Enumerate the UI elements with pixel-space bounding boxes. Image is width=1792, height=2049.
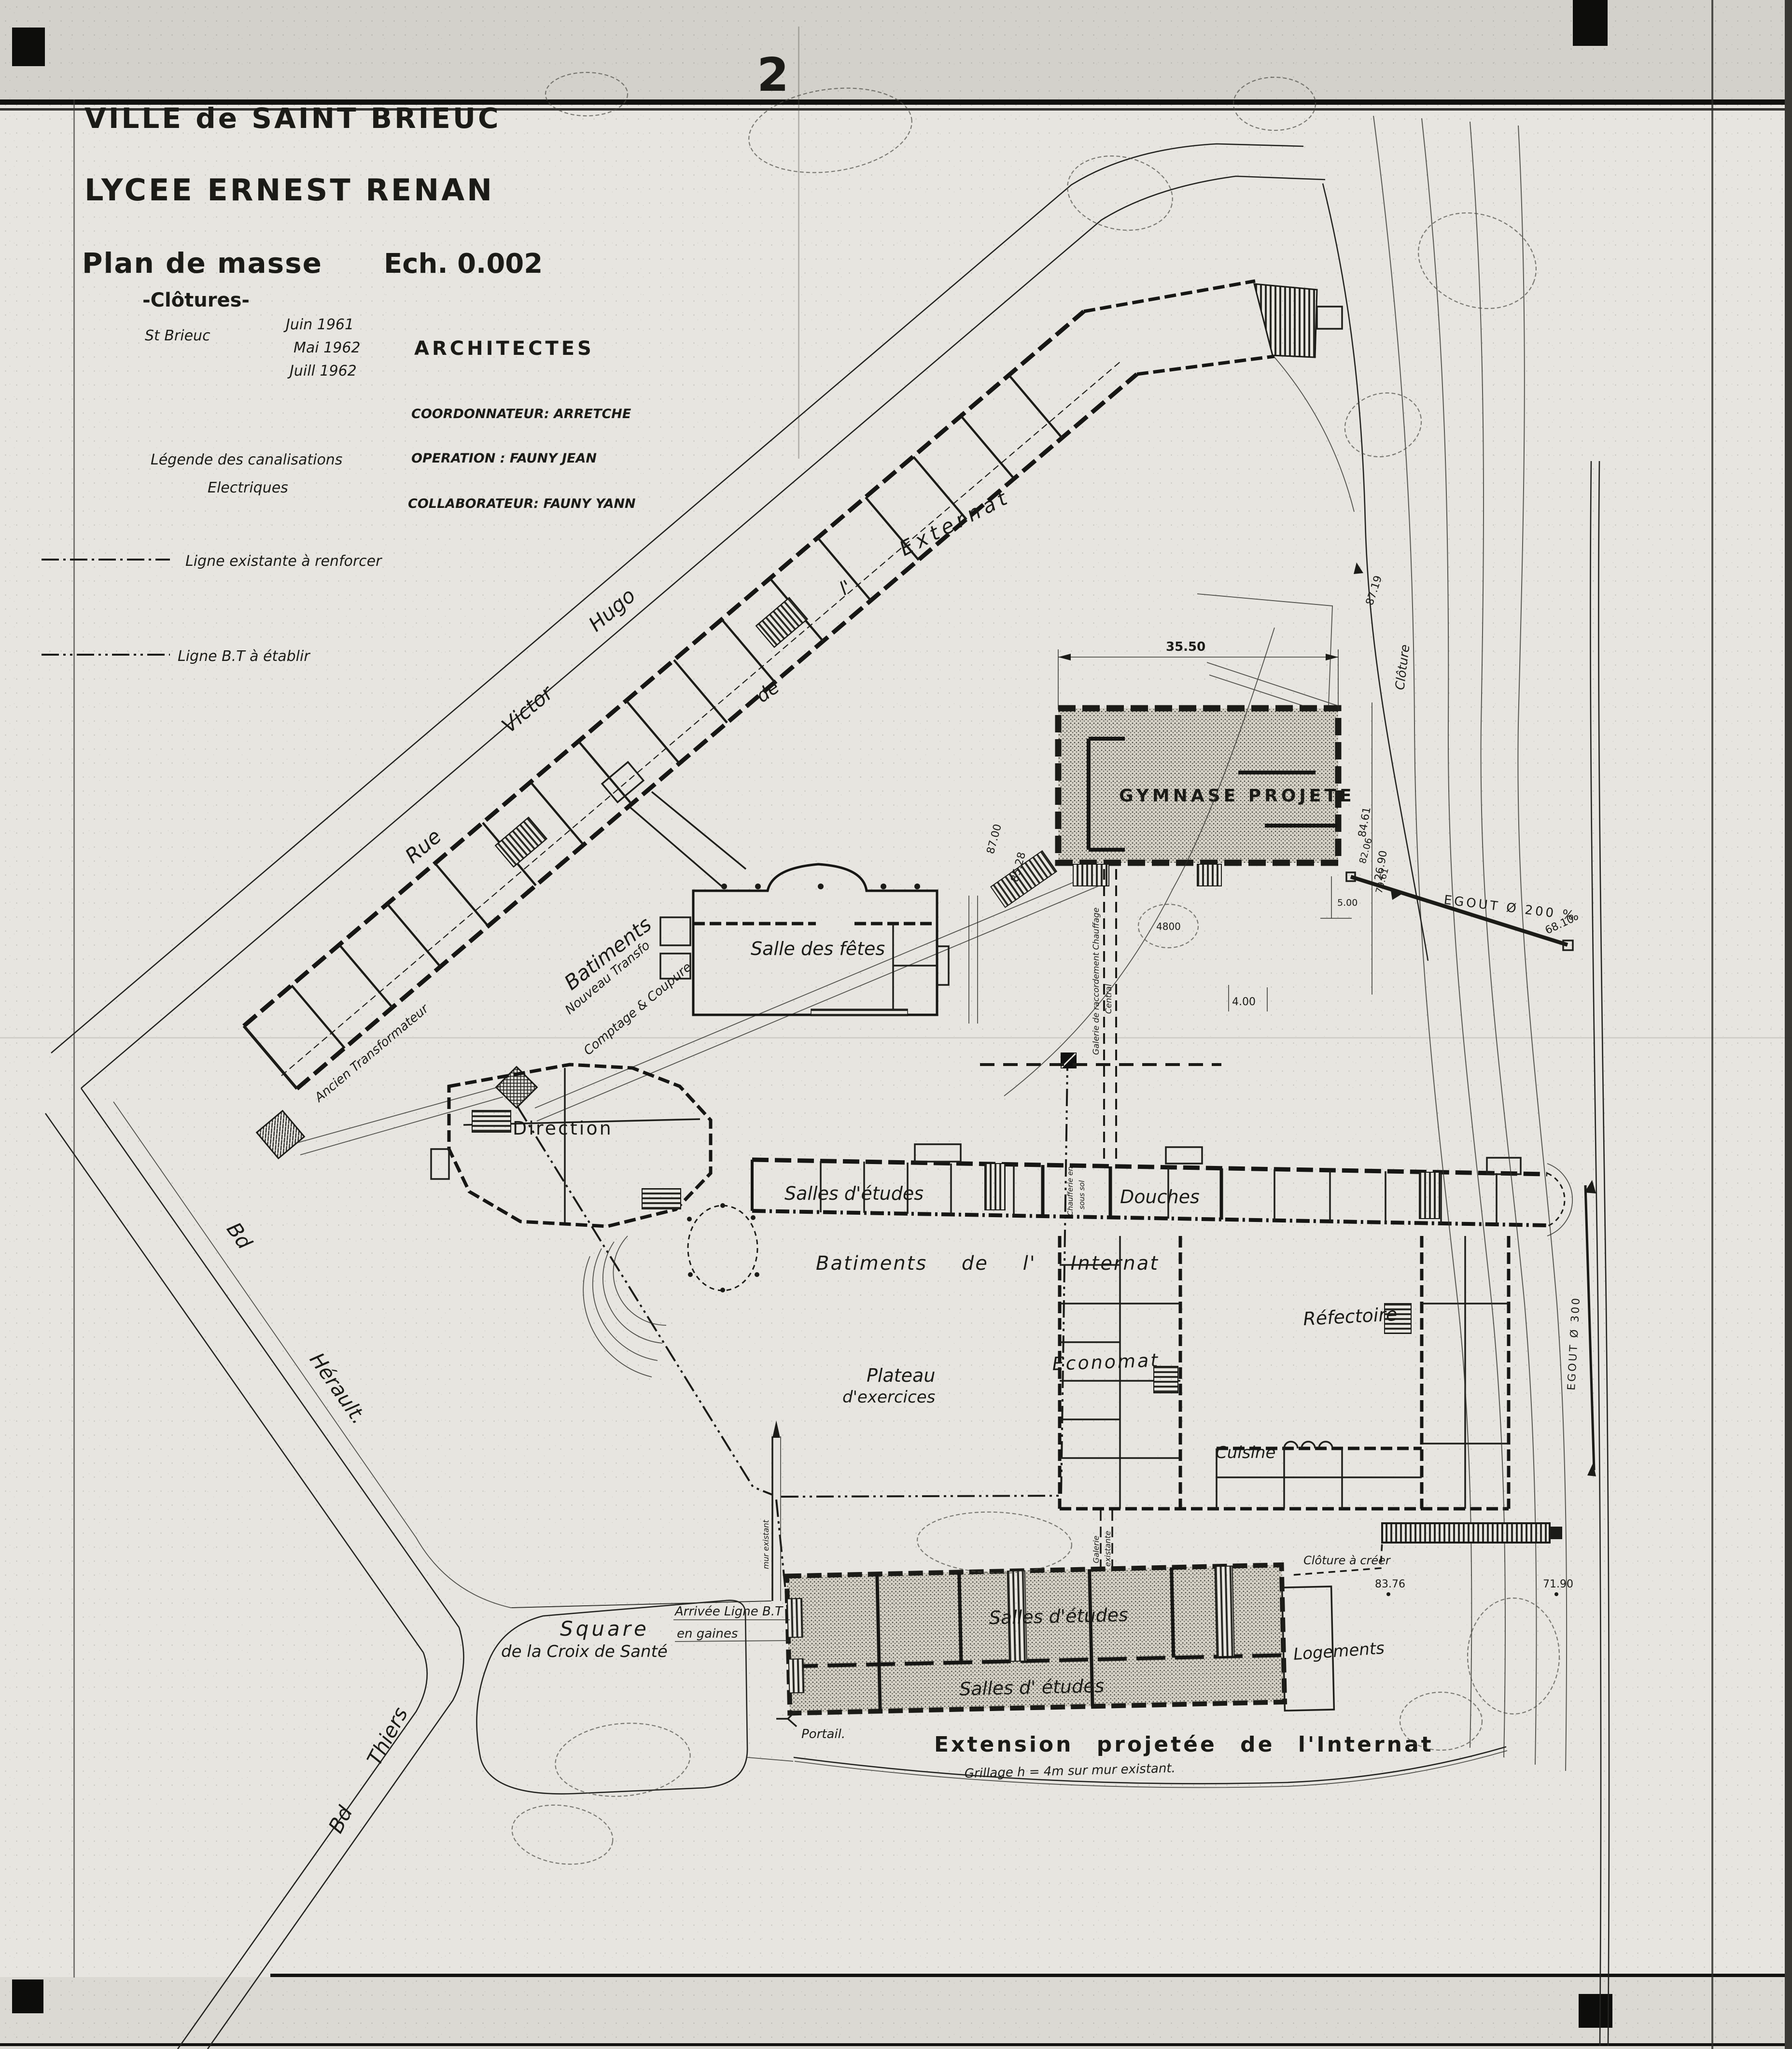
salle-fetes-columns bbox=[721, 884, 920, 889]
chaufferie-label-1: Chaufferie en bbox=[1066, 1166, 1075, 1216]
level-84-61: 84.61 bbox=[1356, 806, 1373, 838]
galerie-raccordement-lines bbox=[1104, 869, 1116, 1165]
rue-victor-hugo-label-2: Victor bbox=[497, 680, 559, 738]
title-school: LYCEE ERNEST RENAN bbox=[84, 172, 494, 208]
site-boundary-west bbox=[113, 1102, 771, 1608]
bd-herault-label-name: Hérault. bbox=[305, 1348, 371, 1429]
egout-300: EGOUT Ø 300 bbox=[1566, 1180, 1596, 1476]
building-externat: Batiments de l' Externat bbox=[244, 281, 1342, 1089]
egout-200: EGOUT Ø 200 ‰ 68.10 82.06 79.61 5.00 bbox=[1320, 837, 1582, 950]
economat-label: Economat bbox=[1052, 1349, 1160, 1375]
gym-stair-se bbox=[1197, 864, 1221, 886]
extension-salles-label-2: Salles d' études bbox=[959, 1675, 1105, 1700]
salle-fetes-link-1 bbox=[630, 807, 724, 888]
bt-route-1 bbox=[518, 1107, 772, 1495]
sheet-number: 2 bbox=[757, 49, 789, 102]
galerie-raccordement-label-2: Central bbox=[1104, 984, 1114, 1014]
plateau-label-1: Plateau bbox=[867, 1365, 935, 1386]
title-date-1: Juin 1961 bbox=[283, 316, 354, 333]
square-label-1: Square bbox=[560, 1617, 649, 1641]
direction-rotunda bbox=[688, 1206, 757, 1291]
title-plan-type: Plan de masse bbox=[82, 247, 322, 280]
externat-ne-wall-2 bbox=[1137, 356, 1274, 374]
galerie-raccordement-label-1: Galerie de raccordement Chauffage bbox=[1092, 908, 1101, 1055]
building-internat: Economat Réfectoire Cuisine bbox=[1052, 1236, 1509, 1509]
strip-east-bay-1 bbox=[1547, 1173, 1565, 1226]
level-87-00: 87.00 bbox=[985, 823, 1004, 855]
legend-item-bt: Ligne B.T à établir bbox=[178, 648, 310, 665]
bd-herault-label-bd: Bd bbox=[222, 1218, 257, 1254]
internat-partitions bbox=[1060, 1236, 1509, 1509]
internat-caption: Batiments de l' Internat bbox=[816, 1252, 1159, 1275]
bd-herault-curb-east bbox=[81, 1088, 459, 1628]
gymnase-label: GYMNASE PROJETE bbox=[1119, 786, 1355, 806]
externat-wall-se bbox=[297, 374, 1137, 1089]
title-scale: Ech. 0.002 bbox=[384, 248, 543, 280]
galerie-existante-label-2: existante bbox=[1103, 1530, 1112, 1567]
arrivee-ligne-bt: Arrivée Ligne B.T en gaines bbox=[673, 1604, 791, 1642]
douches-label: Douches bbox=[1120, 1186, 1200, 1207]
architects-heading: ARCHITECTES bbox=[414, 337, 594, 360]
dim-4-00: 4.00 bbox=[1232, 996, 1256, 1008]
strip-stair-2 bbox=[1419, 1172, 1440, 1219]
externat-stair-ne bbox=[1254, 284, 1317, 357]
direction-terrace-arcs bbox=[583, 1236, 666, 1377]
egout-300-label: EGOUT Ø 300 bbox=[1566, 1296, 1582, 1390]
rotunda-columns bbox=[687, 1203, 759, 1292]
externat-stair-mid-2 bbox=[756, 598, 807, 647]
chaufferie-label-2: sous sol bbox=[1078, 1180, 1086, 1209]
bd-herault-curb-west bbox=[45, 1113, 423, 1653]
title-city: VILLE de SAINT BRIEUC bbox=[84, 102, 501, 135]
cuisine-label: Cuisine bbox=[1216, 1443, 1275, 1462]
extension-stair-west-1 bbox=[787, 1599, 803, 1638]
road-east bbox=[1590, 461, 1609, 2046]
building-extension: Salles d'études Salles d' études bbox=[787, 1564, 1334, 1722]
bt-feed-line-2 bbox=[537, 884, 1105, 1121]
architect-collaborator: COLLABORATEUR: FAUNY YANN bbox=[408, 496, 636, 511]
architect-coordinator: COORDONNATEUR: ARRETCHE bbox=[411, 407, 631, 421]
plateau-label-2: d'exercices bbox=[842, 1388, 935, 1407]
bd-thiers-label-name: Thiers bbox=[363, 1703, 413, 1769]
externat-wall-nw bbox=[244, 311, 1084, 1026]
title-place: St Brieuc bbox=[145, 327, 210, 344]
building-direction: Direction bbox=[431, 1065, 759, 1377]
salle-fetes-link-2 bbox=[652, 792, 746, 869]
level-87-19-arrow bbox=[1354, 562, 1363, 574]
galerie-existante-label-1: Galerie bbox=[1092, 1535, 1101, 1563]
portail: Portail. bbox=[776, 1711, 845, 1741]
ancien-transformateur-label: Ancien Transformateur bbox=[311, 1001, 432, 1106]
direction-stair-1 bbox=[472, 1110, 511, 1132]
externat-caption-4: Externat bbox=[896, 484, 1015, 561]
salle-fetes-annex-1 bbox=[660, 917, 690, 945]
architect-operation: OPERATION : FAUNY JEAN bbox=[411, 451, 597, 466]
level-87-19: 87.19 bbox=[1364, 574, 1385, 607]
salle-fetes-label: Salle des fêtes bbox=[751, 938, 885, 959]
ancien-transformateur-symbol bbox=[257, 1111, 305, 1159]
rue-victor-hugo-curb-1 bbox=[81, 176, 1325, 1088]
plateau-wall-arrow bbox=[772, 1420, 780, 1438]
title-block: 2 VILLE de SAINT BRIEUC LYCEE ERNEST REN… bbox=[82, 49, 789, 511]
externat-ne-wall-1 bbox=[1084, 281, 1255, 311]
salles-etudes-label: Salles d'études bbox=[784, 1183, 924, 1204]
cloture-a-creer: Clôture à créer 83.76 71.90 bbox=[1294, 1541, 1573, 1596]
title-plan-subtype: -Clôtures- bbox=[142, 289, 250, 311]
extension-caption: Extension projetée de l'Internat bbox=[934, 1732, 1434, 1757]
title-date-2: Mai 1962 bbox=[294, 339, 361, 356]
logements-label: Logements bbox=[1293, 1639, 1385, 1664]
cloture-a-creer-label: Clôture à créer bbox=[1303, 1554, 1391, 1567]
level-83-76: 83.76 bbox=[1375, 1578, 1405, 1590]
square-croix-sante: Square de la Croix de Santé bbox=[476, 1600, 793, 1794]
bt-feed-line-1 bbox=[535, 870, 1102, 1108]
site-plan-drawing: 2 VILLE de SAINT BRIEUC LYCEE ERNEST REN… bbox=[0, 0, 1792, 2049]
direction-porch bbox=[431, 1149, 449, 1179]
externat-caption-2: de bbox=[752, 676, 783, 707]
externat-cross-walls bbox=[292, 375, 1062, 1048]
externat-annex-mid bbox=[602, 762, 644, 802]
legend-title-1: Légende des canalisations bbox=[151, 451, 342, 468]
gymnase-fill bbox=[1058, 708, 1338, 863]
extension-stair-2 bbox=[1215, 1566, 1234, 1657]
level-71-90: 71.90 bbox=[1543, 1578, 1573, 1590]
square-to-portail-line bbox=[747, 1757, 793, 1761]
legend-title-2: Electriques bbox=[208, 479, 288, 496]
externat-corridor bbox=[281, 361, 1121, 1076]
building-strip: Salles d'études Douches Chaufferie en so… bbox=[752, 1144, 1572, 1275]
externat-end-sw bbox=[244, 1026, 297, 1089]
externat-ne-annex bbox=[1317, 307, 1342, 329]
footbridge bbox=[1382, 1523, 1562, 1543]
legend: Légende des canalisations Electriques Li… bbox=[42, 451, 382, 665]
bt-route-2 bbox=[781, 1067, 1067, 1497]
legend-item-existing: Ligne existante à renforcer bbox=[185, 553, 382, 570]
grillage-label: Grillage h = 4m sur mur existant. bbox=[964, 1761, 1176, 1781]
mur-label: mur existant bbox=[761, 1519, 770, 1569]
cloture-label: Clôture bbox=[1393, 644, 1413, 691]
externat-stair-mid-1 bbox=[495, 817, 546, 867]
strip-stair-1 bbox=[985, 1164, 1005, 1210]
extension-salles-label-1: Salles d'études bbox=[989, 1604, 1128, 1629]
direction-label: Direction bbox=[513, 1118, 613, 1139]
portail-label: Portail. bbox=[801, 1727, 845, 1741]
building-gymnase: GYMNASE PROJETE Galerie de raccordement … bbox=[969, 357, 1390, 1165]
arrivee-label-2: en gaines bbox=[677, 1627, 738, 1641]
square-label-2: de la Croix de Santé bbox=[501, 1642, 668, 1661]
dim-35-50: 35.50 bbox=[1166, 640, 1205, 654]
title-date-3: Juill 1962 bbox=[287, 363, 357, 379]
rue-victor-hugo-label-3: Hugo bbox=[584, 584, 640, 636]
bd-thiers-label-bd: Bd bbox=[324, 1802, 357, 1837]
salle-fetes-entrance-steps bbox=[811, 1009, 908, 1016]
arrivee-label-1: Arrivée Ligne B.T bbox=[674, 1604, 784, 1619]
dim-5-00: 5.00 bbox=[1337, 898, 1358, 908]
salle-fetes-bay bbox=[937, 946, 949, 985]
tree-4800-label: 4800 bbox=[1156, 921, 1181, 932]
extension-stair-west-2 bbox=[789, 1659, 804, 1693]
direction-stair-2 bbox=[642, 1189, 681, 1209]
refectoire-label: Réfectoire bbox=[1302, 1304, 1398, 1330]
